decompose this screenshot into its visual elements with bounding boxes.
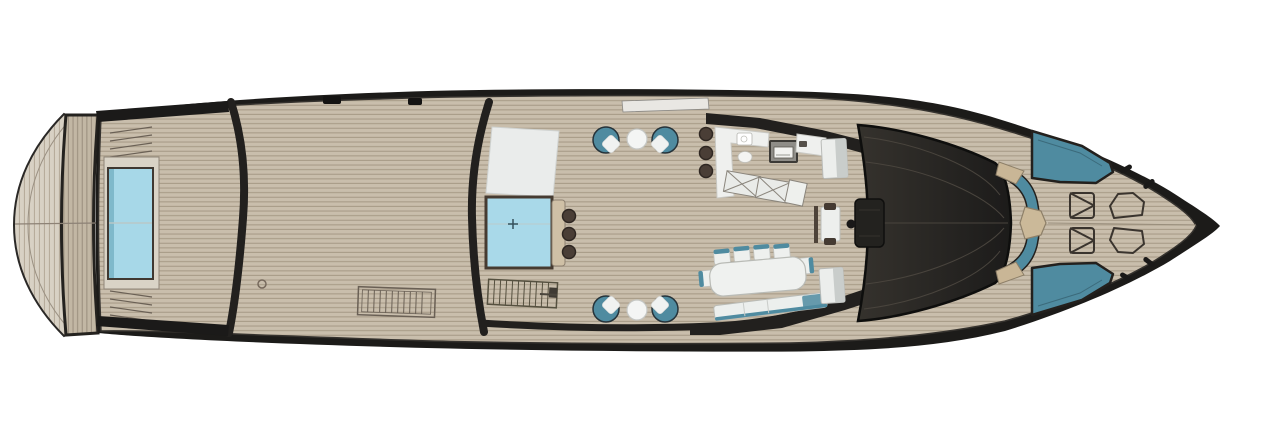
dining-cabinet bbox=[819, 267, 845, 304]
bar-stool bbox=[700, 165, 713, 178]
cocktail-table bbox=[627, 129, 647, 149]
bench-back-strip bbox=[814, 206, 818, 243]
dining-chair bbox=[753, 244, 770, 260]
bar-stool bbox=[563, 210, 576, 223]
grill-lid bbox=[774, 147, 793, 158]
stair-landing bbox=[549, 287, 558, 297]
bar-stool bbox=[700, 147, 713, 160]
mast-housing bbox=[855, 199, 884, 247]
bar-stool bbox=[700, 128, 713, 141]
bow-sunpad-port bbox=[1032, 131, 1113, 183]
gunwale-fitting bbox=[408, 98, 422, 105]
observation-table-area bbox=[814, 203, 840, 245]
counter-appliance bbox=[738, 152, 752, 163]
anchor-fitting bbox=[847, 220, 856, 229]
gunwale-fitting bbox=[323, 96, 341, 104]
cocktail-table bbox=[627, 300, 647, 320]
observation-seat bbox=[824, 203, 836, 210]
bar-stool bbox=[563, 246, 576, 259]
swim-platform bbox=[14, 114, 98, 336]
dining-chair bbox=[733, 246, 750, 262]
galley-cabinet bbox=[821, 138, 848, 178]
yacht-deck-plan bbox=[0, 0, 1272, 433]
spa-pool bbox=[486, 197, 552, 268]
midship-sunpad bbox=[486, 127, 559, 197]
swim-platform-deck bbox=[14, 114, 67, 336]
bar-stool bbox=[563, 228, 576, 241]
observation-seat bbox=[824, 238, 836, 245]
observation-table bbox=[821, 207, 840, 241]
counter-item bbox=[799, 141, 807, 147]
transom-fascia bbox=[62, 115, 99, 335]
aft-pool bbox=[104, 157, 159, 289]
sink bbox=[737, 133, 752, 145]
